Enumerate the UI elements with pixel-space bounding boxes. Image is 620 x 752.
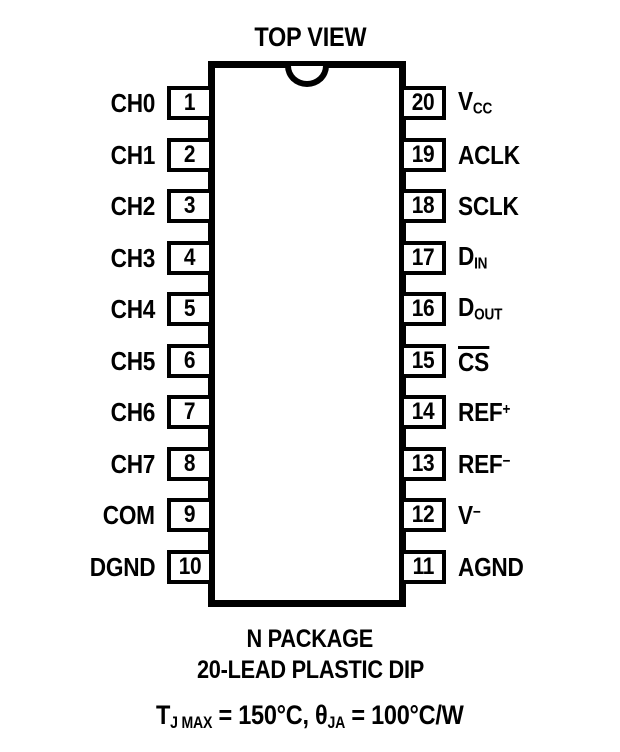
text-part: CS: [458, 346, 489, 375]
pin-label-18: SCLK: [458, 193, 519, 219]
pin-number-box-1: 1: [167, 86, 213, 120]
package-type-caption: 20-LEAD PLASTIC DIP: [196, 657, 423, 685]
pin-number-box-2: 2: [167, 138, 213, 172]
text-part: CH2: [111, 191, 155, 221]
pin-row-right-15: 15CS: [400, 344, 494, 378]
pin-row-left-6: CH56: [40, 344, 213, 378]
pin-label-5: CH4: [111, 296, 155, 322]
pin-number: 14: [412, 400, 435, 424]
pin-number-box-11: 11: [400, 550, 446, 584]
pin-row-left-2: CH12: [40, 138, 213, 172]
pin-row-left-4: CH34: [40, 241, 213, 275]
pin-row-left-8: CH78: [40, 447, 213, 481]
pin-number-box-17: 17: [400, 241, 446, 275]
text-part: V: [458, 86, 473, 116]
caption-line-1: N PACKAGE: [0, 626, 620, 654]
text-part: CH5: [111, 346, 155, 376]
pin-number: 15: [412, 349, 435, 373]
text-part: SCLK: [458, 191, 519, 221]
text-part: REF: [458, 397, 502, 427]
pin-number: 19: [412, 143, 435, 167]
pin-label-3: CH2: [111, 193, 155, 219]
pin-label-9: COM: [103, 502, 155, 528]
pin-number: 7: [184, 400, 195, 424]
thermal-note-line: TJ MAX = 150°C, θJA = 100°C/W: [0, 701, 620, 733]
text-part: −: [473, 504, 481, 521]
pin-number: 12: [412, 503, 435, 527]
pin-row-right-11: 11AGND: [400, 550, 533, 584]
pin-row-right-12: 12V−: [400, 498, 484, 532]
text-part: JA: [328, 714, 346, 732]
pin-number-box-15: 15: [400, 344, 446, 378]
pin-number-box-18: 18: [400, 189, 446, 223]
text-part: V: [458, 500, 473, 530]
package-notch: [285, 66, 329, 87]
pin-number: 4: [184, 246, 195, 270]
pin-number: 2: [184, 143, 195, 167]
text-part: OUT: [474, 307, 502, 324]
pin-number: 16: [412, 297, 435, 321]
pin-row-right-20: 20VCC: [400, 86, 497, 120]
text-part: COM: [103, 500, 155, 530]
pin-label-19: ACLK: [458, 142, 520, 168]
pin-label-1: CH0: [111, 90, 155, 116]
pin-label-11: AGND: [458, 554, 524, 580]
pin-number: 6: [184, 349, 195, 373]
pin-row-right-16: 16DOUT: [400, 292, 509, 326]
pin-label-16: DOUT: [458, 294, 502, 323]
text-part: −: [502, 452, 510, 469]
pin-row-left-5: CH45: [40, 292, 213, 326]
pin-number: 20: [412, 91, 435, 115]
pin-row-right-18: 18SCLK: [400, 189, 528, 223]
diagram-title: TOP VIEW: [254, 23, 366, 53]
text-part: ACLK: [458, 140, 520, 170]
pin-label-8: CH7: [111, 451, 155, 477]
pin-number-box-14: 14: [400, 395, 446, 429]
pin-number-box-7: 7: [167, 395, 213, 429]
pin-label-4: CH3: [111, 245, 155, 271]
title-line: TOP VIEW: [0, 23, 620, 53]
text-part: CH6: [111, 397, 155, 427]
pin-number-box-8: 8: [167, 447, 213, 481]
text-part: = 100°C/W: [345, 700, 463, 730]
text-part: AGND: [458, 552, 524, 582]
pin-label-14: REF+: [458, 399, 510, 425]
pin-row-left-3: CH23: [40, 189, 213, 223]
pin-label-13: REF−: [458, 451, 510, 477]
pin-number: 5: [184, 297, 195, 321]
pinout-diagram: TOP VIEW N PACKAGE 20-LEAD PLASTIC DIP T…: [0, 0, 620, 752]
pin-row-left-10: DGND10: [40, 550, 213, 584]
text-part: +: [502, 401, 510, 418]
pin-number: 9: [184, 503, 195, 527]
pin-number-box-12: 12: [400, 498, 446, 532]
pin-label-12: V−: [458, 502, 481, 528]
pin-row-right-13: 13REF−: [400, 447, 518, 481]
text-part: IN: [474, 256, 487, 273]
pin-row-right-17: 17DIN: [400, 241, 492, 275]
pin-number-box-13: 13: [400, 447, 446, 481]
text-part: CC: [473, 101, 492, 118]
pin-row-right-14: 14REF+: [400, 395, 518, 429]
caption-line-2: 20-LEAD PLASTIC DIP: [0, 657, 620, 685]
text-part: J MAX: [170, 714, 212, 732]
text-part: θ: [315, 700, 327, 730]
pin-number-box-19: 19: [400, 138, 446, 172]
text-part: CH7: [111, 449, 155, 479]
pin-number: 13: [412, 452, 435, 476]
text-part: CH3: [111, 243, 155, 273]
pin-label-6: CH5: [111, 348, 155, 374]
pin-number-box-9: 9: [167, 498, 213, 532]
text-part: CH1: [111, 140, 155, 170]
text-part: D: [458, 241, 474, 271]
pin-number-box-5: 5: [167, 292, 213, 326]
pin-number-box-16: 16: [400, 292, 446, 326]
text-part: CH0: [111, 88, 155, 118]
pin-label-15: CS: [458, 346, 489, 375]
thermal-note: TJ MAX = 150°C, θJA = 100°C/W: [156, 701, 464, 733]
pin-label-7: CH6: [111, 399, 155, 425]
pin-row-left-7: CH67: [40, 395, 213, 429]
pin-number: 1: [184, 91, 195, 115]
pin-label-17: DIN: [458, 243, 487, 272]
package-name-caption: N PACKAGE: [247, 626, 374, 654]
pin-number: 11: [412, 555, 434, 579]
pin-number: 10: [179, 555, 202, 579]
pin-number: 18: [412, 194, 435, 218]
text-part: CH4: [111, 294, 155, 324]
text-part: T: [156, 700, 170, 730]
ic-package-body: [208, 61, 406, 607]
text-part: DGND: [89, 552, 155, 582]
pin-label-20: VCC: [458, 88, 492, 117]
pin-number-box-20: 20: [400, 86, 446, 120]
pin-row-left-9: COM9: [40, 498, 213, 532]
text-part: = 150°C,: [212, 700, 315, 730]
pin-number-box-3: 3: [167, 189, 213, 223]
pin-number: 3: [184, 194, 195, 218]
pin-number-box-4: 4: [167, 241, 213, 275]
pin-label-2: CH1: [111, 142, 155, 168]
pin-number: 17: [412, 246, 435, 270]
text-part: D: [458, 292, 474, 322]
pin-number-box-10: 10: [167, 550, 213, 584]
pin-row-right-19: 19ACLK: [400, 138, 529, 172]
pin-row-left-1: CH01: [40, 86, 213, 120]
pin-number: 8: [184, 452, 195, 476]
pin-label-10: DGND: [89, 554, 155, 580]
text-part: REF: [458, 449, 502, 479]
pin-number-box-6: 6: [167, 344, 213, 378]
